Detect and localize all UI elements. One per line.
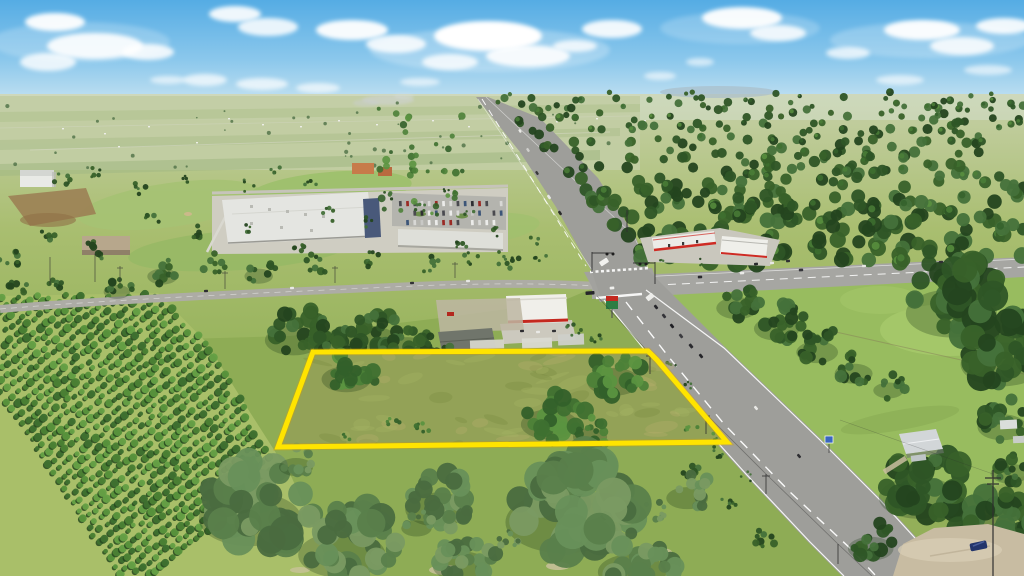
big-box-roof bbox=[222, 192, 374, 244]
red-dumpster bbox=[447, 312, 454, 316]
white-house bbox=[20, 170, 56, 187]
aerial-photo: Aerial land-listing photo bbox=[0, 0, 1024, 576]
distant-ridge bbox=[660, 86, 776, 98]
aerial-photo-scene: Aerial land-listing photo bbox=[0, 0, 1024, 576]
parking-lot bbox=[392, 193, 506, 230]
